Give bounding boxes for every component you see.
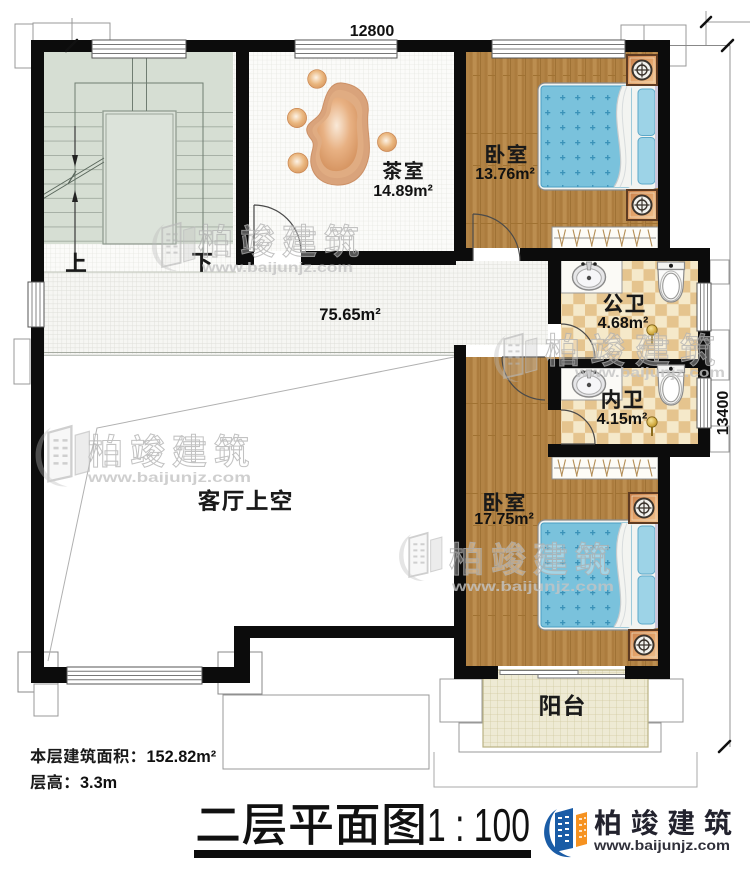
svg-text:13400: 13400	[715, 391, 732, 436]
svg-text:4.15m²: 4.15m²	[597, 411, 648, 428]
svg-text:www.baijunjz.com: www.baijunjz.com	[451, 579, 614, 594]
svg-text:3.3m: 3.3m	[80, 774, 117, 792]
svg-text:17.75m²: 17.75m²	[474, 511, 534, 528]
svg-text:www.baijunjz.com: www.baijunjz.com	[593, 838, 730, 853]
svg-text:1 : 100: 1 : 100	[427, 799, 530, 851]
svg-text:www.baijunjz.com: www.baijunjz.com	[201, 260, 353, 275]
svg-text:12800: 12800	[350, 23, 395, 40]
svg-text:75.65m²: 75.65m²	[319, 306, 381, 324]
svg-text:13.76m²: 13.76m²	[475, 166, 535, 183]
svg-text:www.baijunjz.com: www.baijunjz.com	[574, 365, 725, 380]
svg-text:14.89m²: 14.89m²	[373, 183, 433, 200]
svg-text:www.baijunjz.com: www.baijunjz.com	[87, 470, 251, 485]
svg-text:152.82m²: 152.82m²	[147, 748, 217, 766]
svg-text:4.68m²: 4.68m²	[598, 315, 649, 332]
